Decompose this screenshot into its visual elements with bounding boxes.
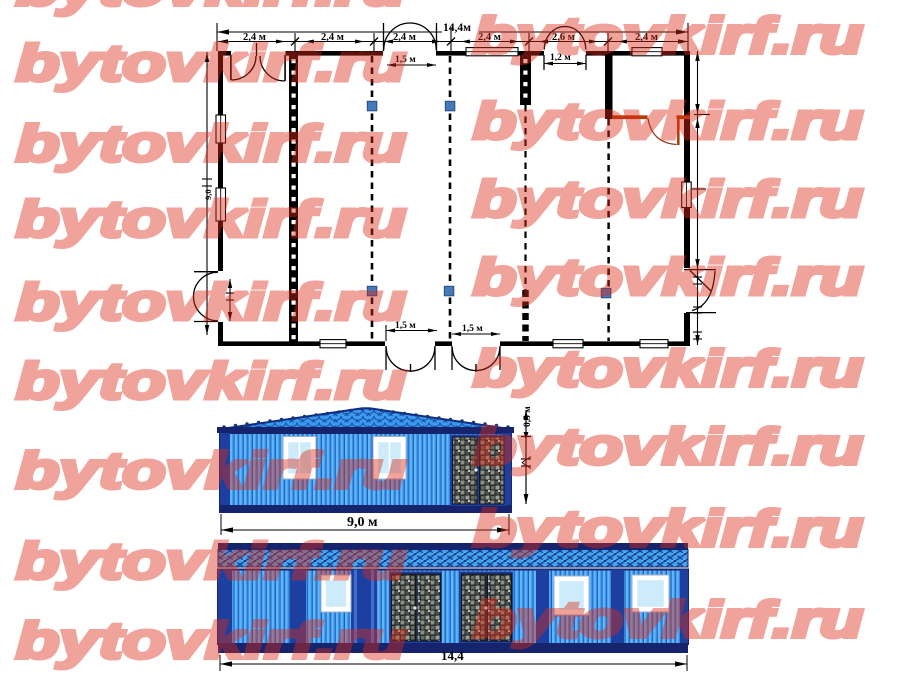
svg-text:bytovkirf.ru: bytovkirf.ru [16, 0, 406, 16]
svg-text:bytovkirf.ru: bytovkirf.ru [473, 170, 863, 227]
svg-text:bytovkirf.ru: bytovkirf.ru [16, 115, 406, 172]
svg-text:bytovkirf.ru: bytovkirf.ru [16, 612, 406, 669]
svg-text:bytovkirf.ru: bytovkirf.ru [473, 248, 863, 305]
svg-text:bytovkirf.ru: bytovkirf.ru [16, 442, 406, 499]
svg-text:14,4: 14,4 [441, 648, 464, 663]
svg-text:bytovkirf.ru: bytovkirf.ru [473, 500, 863, 557]
svg-text:bytovkirf.ru: bytovkirf.ru [16, 34, 406, 91]
svg-text:bytovkirf.ru: bytovkirf.ru [473, 92, 863, 149]
svg-text:bytovkirf.ru: bytovkirf.ru [473, 591, 863, 648]
svg-text:bytovkirf.ru: bytovkirf.ru [16, 273, 406, 330]
svg-text:9,0 м: 9,0 м [347, 515, 378, 530]
svg-text:bytovkirf.ru: bytovkirf.ru [473, 340, 863, 397]
svg-text:1,5 м: 1,5 м [462, 324, 483, 334]
svg-text:14,4м: 14,4м [443, 22, 471, 34]
svg-text:bytovkirf.ru: bytovkirf.ru [16, 353, 406, 410]
svg-text:bytovkirf.ru: bytovkirf.ru [16, 190, 406, 247]
svg-text:bytovkirf.ru: bytovkirf.ru [473, 7, 863, 64]
svg-text:bytovkirf.ru: bytovkirf.ru [16, 533, 406, 590]
svg-text:bytovkirf.ru: bytovkirf.ru [473, 418, 863, 475]
